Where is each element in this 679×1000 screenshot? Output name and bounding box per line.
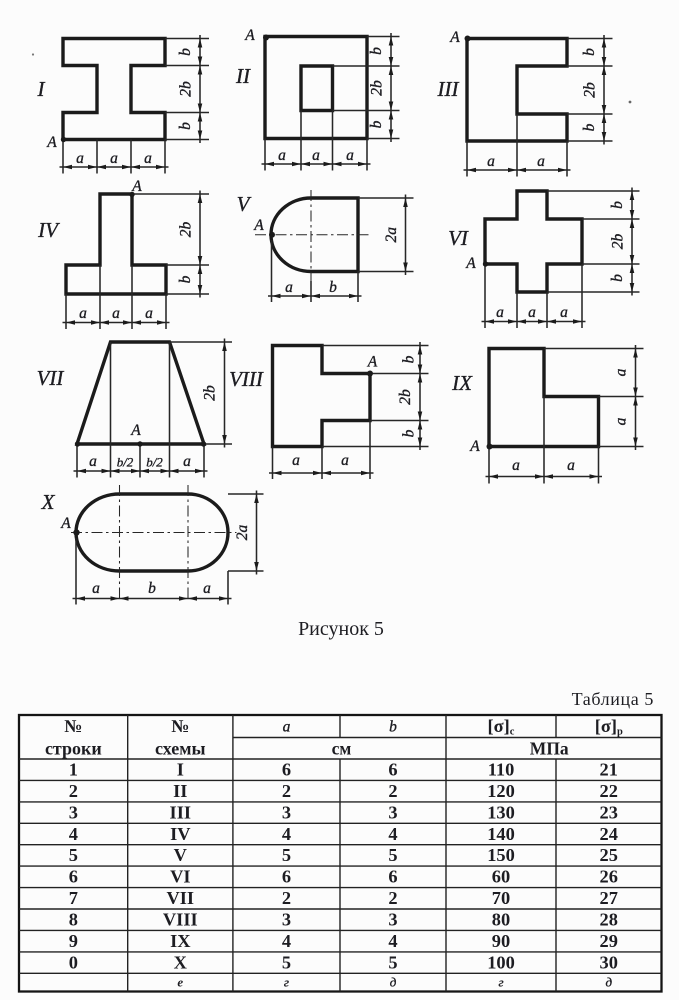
svg-text:Таблица 5: Таблица 5 bbox=[572, 689, 654, 709]
svg-text:2: 2 bbox=[282, 781, 291, 801]
svg-text:[σ]с: [σ]с bbox=[488, 716, 515, 738]
svg-text:III: III bbox=[170, 802, 191, 822]
svg-text:b: b bbox=[401, 355, 418, 363]
svg-text:26: 26 bbox=[600, 867, 618, 887]
svg-text:110: 110 bbox=[488, 760, 515, 780]
svg-text:д: д bbox=[390, 975, 397, 990]
svg-text:2b: 2b bbox=[582, 82, 599, 98]
svg-text:a: a bbox=[285, 279, 293, 296]
svg-text:b: b bbox=[148, 580, 156, 597]
svg-text:a: a bbox=[528, 304, 536, 321]
svg-text:II: II bbox=[235, 64, 251, 88]
svg-text:2b: 2b bbox=[178, 222, 195, 238]
svg-text:III: III bbox=[437, 77, 460, 101]
svg-text:a: a bbox=[496, 304, 504, 321]
svg-text:150: 150 bbox=[487, 845, 515, 865]
svg-text:МПа: МПа bbox=[530, 739, 569, 759]
svg-text:№: № bbox=[64, 716, 82, 736]
svg-text:см: см bbox=[332, 739, 352, 759]
svg-text:b: b bbox=[389, 719, 397, 736]
svg-text:6: 6 bbox=[388, 867, 397, 887]
svg-text:2b: 2b bbox=[202, 385, 219, 401]
svg-text:a: a bbox=[537, 153, 545, 170]
svg-text:3: 3 bbox=[282, 802, 291, 822]
svg-text:a: a bbox=[144, 150, 152, 167]
svg-text:A: A bbox=[46, 134, 57, 151]
svg-text:VIII: VIII bbox=[229, 367, 264, 391]
svg-text:28: 28 bbox=[600, 910, 618, 930]
svg-text:80: 80 bbox=[492, 910, 510, 930]
svg-text:4: 4 bbox=[388, 931, 397, 951]
svg-text:7: 7 bbox=[69, 888, 78, 908]
svg-text:3: 3 bbox=[69, 802, 78, 822]
svg-text:Рисунок 5: Рисунок 5 bbox=[298, 618, 384, 640]
svg-text:a: a bbox=[203, 580, 211, 597]
svg-text:IX: IX bbox=[170, 931, 191, 951]
svg-text:2: 2 bbox=[388, 888, 397, 908]
svg-text:a: a bbox=[92, 580, 100, 597]
svg-text:27: 27 bbox=[600, 888, 618, 908]
svg-text:[σ]р: [σ]р bbox=[595, 716, 623, 738]
svg-text:a: a bbox=[312, 147, 320, 164]
svg-text:a: a bbox=[346, 147, 354, 164]
svg-text:30: 30 bbox=[600, 952, 618, 972]
svg-text:е: е bbox=[177, 975, 183, 990]
svg-text:a: a bbox=[567, 457, 575, 474]
svg-text:a: a bbox=[487, 153, 495, 170]
svg-text:г: г bbox=[498, 975, 503, 990]
svg-text:X: X bbox=[174, 952, 188, 972]
svg-text:0: 0 bbox=[69, 952, 78, 972]
svg-text:г: г bbox=[284, 975, 289, 990]
svg-text:2: 2 bbox=[388, 781, 397, 801]
svg-text:a: a bbox=[512, 457, 520, 474]
svg-text:100: 100 bbox=[487, 952, 515, 972]
svg-text:A: A bbox=[130, 422, 141, 439]
svg-text:b: b bbox=[177, 48, 194, 56]
svg-text:VII: VII bbox=[166, 888, 194, 908]
svg-text:b/2: b/2 bbox=[117, 455, 134, 470]
svg-text:b: b bbox=[177, 122, 194, 130]
svg-text:4: 4 bbox=[388, 824, 397, 844]
svg-text:b: b bbox=[401, 429, 418, 437]
svg-text:23: 23 bbox=[600, 802, 618, 822]
svg-text:b: b bbox=[368, 120, 385, 128]
svg-text:IV: IV bbox=[37, 218, 60, 242]
svg-text:a: a bbox=[76, 150, 84, 167]
svg-text:a: a bbox=[79, 305, 87, 322]
svg-text:V: V bbox=[237, 192, 252, 216]
svg-text:60: 60 bbox=[492, 867, 510, 887]
svg-text:a: a bbox=[110, 150, 118, 167]
svg-text:a: a bbox=[560, 304, 568, 321]
svg-text:a: a bbox=[145, 305, 153, 322]
svg-text:a: a bbox=[613, 417, 630, 425]
svg-text:2b: 2b bbox=[610, 234, 627, 250]
svg-text:b: b bbox=[329, 279, 337, 296]
svg-text:a: a bbox=[613, 368, 630, 376]
svg-text:II: II bbox=[173, 781, 187, 801]
svg-text:6: 6 bbox=[282, 867, 291, 887]
svg-text:VIII: VIII bbox=[163, 910, 198, 930]
svg-text:A: A bbox=[465, 255, 476, 272]
svg-text:IX: IX bbox=[451, 371, 473, 395]
svg-text:2a: 2a bbox=[383, 227, 400, 243]
svg-text:A: A bbox=[60, 515, 71, 532]
svg-text:№: № bbox=[171, 716, 189, 736]
svg-text:A: A bbox=[449, 29, 460, 46]
svg-text:a: a bbox=[283, 719, 291, 736]
svg-text:2: 2 bbox=[282, 888, 291, 908]
svg-text:2b: 2b bbox=[397, 389, 414, 405]
svg-text:I: I bbox=[37, 77, 46, 101]
svg-text:A: A bbox=[244, 27, 255, 44]
svg-text:2b: 2b bbox=[369, 80, 386, 96]
svg-text:V: V bbox=[174, 845, 188, 865]
svg-text:VI: VI bbox=[170, 867, 190, 887]
svg-text:5: 5 bbox=[282, 952, 291, 972]
svg-text:24: 24 bbox=[600, 824, 618, 844]
svg-text:b: b bbox=[177, 275, 194, 283]
svg-text:29: 29 bbox=[600, 931, 618, 951]
svg-text:2b: 2b bbox=[178, 81, 195, 97]
svg-text:70: 70 bbox=[492, 888, 510, 908]
svg-text:130: 130 bbox=[487, 802, 515, 822]
svg-text:5: 5 bbox=[388, 845, 397, 865]
svg-text:5: 5 bbox=[282, 845, 291, 865]
svg-text:строки: строки bbox=[45, 739, 102, 759]
svg-text:120: 120 bbox=[487, 781, 515, 801]
svg-text:b: b bbox=[581, 48, 598, 56]
svg-text:IV: IV bbox=[170, 824, 191, 844]
svg-text:4: 4 bbox=[282, 931, 291, 951]
svg-text:b: b bbox=[609, 274, 626, 282]
svg-text:a: a bbox=[341, 452, 349, 469]
svg-text:a: a bbox=[183, 453, 191, 470]
svg-text:A: A bbox=[253, 217, 264, 234]
svg-text:6: 6 bbox=[282, 760, 291, 780]
svg-text:a: a bbox=[112, 305, 120, 322]
svg-text:2: 2 bbox=[69, 781, 78, 801]
svg-text:9: 9 bbox=[69, 931, 78, 951]
svg-text:6: 6 bbox=[388, 760, 397, 780]
svg-text:21: 21 bbox=[600, 760, 618, 780]
svg-text:a: a bbox=[278, 147, 286, 164]
svg-text:3: 3 bbox=[388, 910, 397, 930]
svg-text:A: A bbox=[469, 438, 480, 455]
svg-text:схемы: схемы bbox=[155, 739, 206, 759]
svg-text:140: 140 bbox=[487, 824, 515, 844]
svg-text:b: b bbox=[609, 201, 626, 209]
svg-text:A: A bbox=[367, 354, 378, 371]
svg-text:a: a bbox=[292, 452, 300, 469]
svg-text:X: X bbox=[41, 490, 56, 514]
svg-text:25: 25 bbox=[600, 845, 618, 865]
svg-text:5: 5 bbox=[69, 845, 78, 865]
svg-text:a: a bbox=[89, 453, 97, 470]
svg-text:VI: VI bbox=[448, 226, 469, 250]
svg-text:VII: VII bbox=[37, 366, 65, 390]
svg-text:д: д bbox=[605, 975, 612, 990]
svg-text:6: 6 bbox=[69, 867, 78, 887]
svg-text:4: 4 bbox=[282, 824, 291, 844]
svg-text:3: 3 bbox=[282, 910, 291, 930]
svg-text:2a: 2a bbox=[234, 525, 251, 541]
svg-text:3: 3 bbox=[388, 802, 397, 822]
svg-text:b: b bbox=[581, 123, 598, 131]
svg-text:I: I bbox=[177, 760, 184, 780]
svg-text:22: 22 bbox=[600, 781, 618, 801]
svg-text:8: 8 bbox=[69, 910, 78, 930]
svg-text:b/2: b/2 bbox=[146, 455, 163, 470]
svg-text:b: b bbox=[368, 47, 385, 55]
svg-text:90: 90 bbox=[492, 931, 510, 951]
svg-text:5: 5 bbox=[388, 952, 397, 972]
svg-text:1: 1 bbox=[69, 760, 78, 780]
svg-text:4: 4 bbox=[69, 824, 78, 844]
